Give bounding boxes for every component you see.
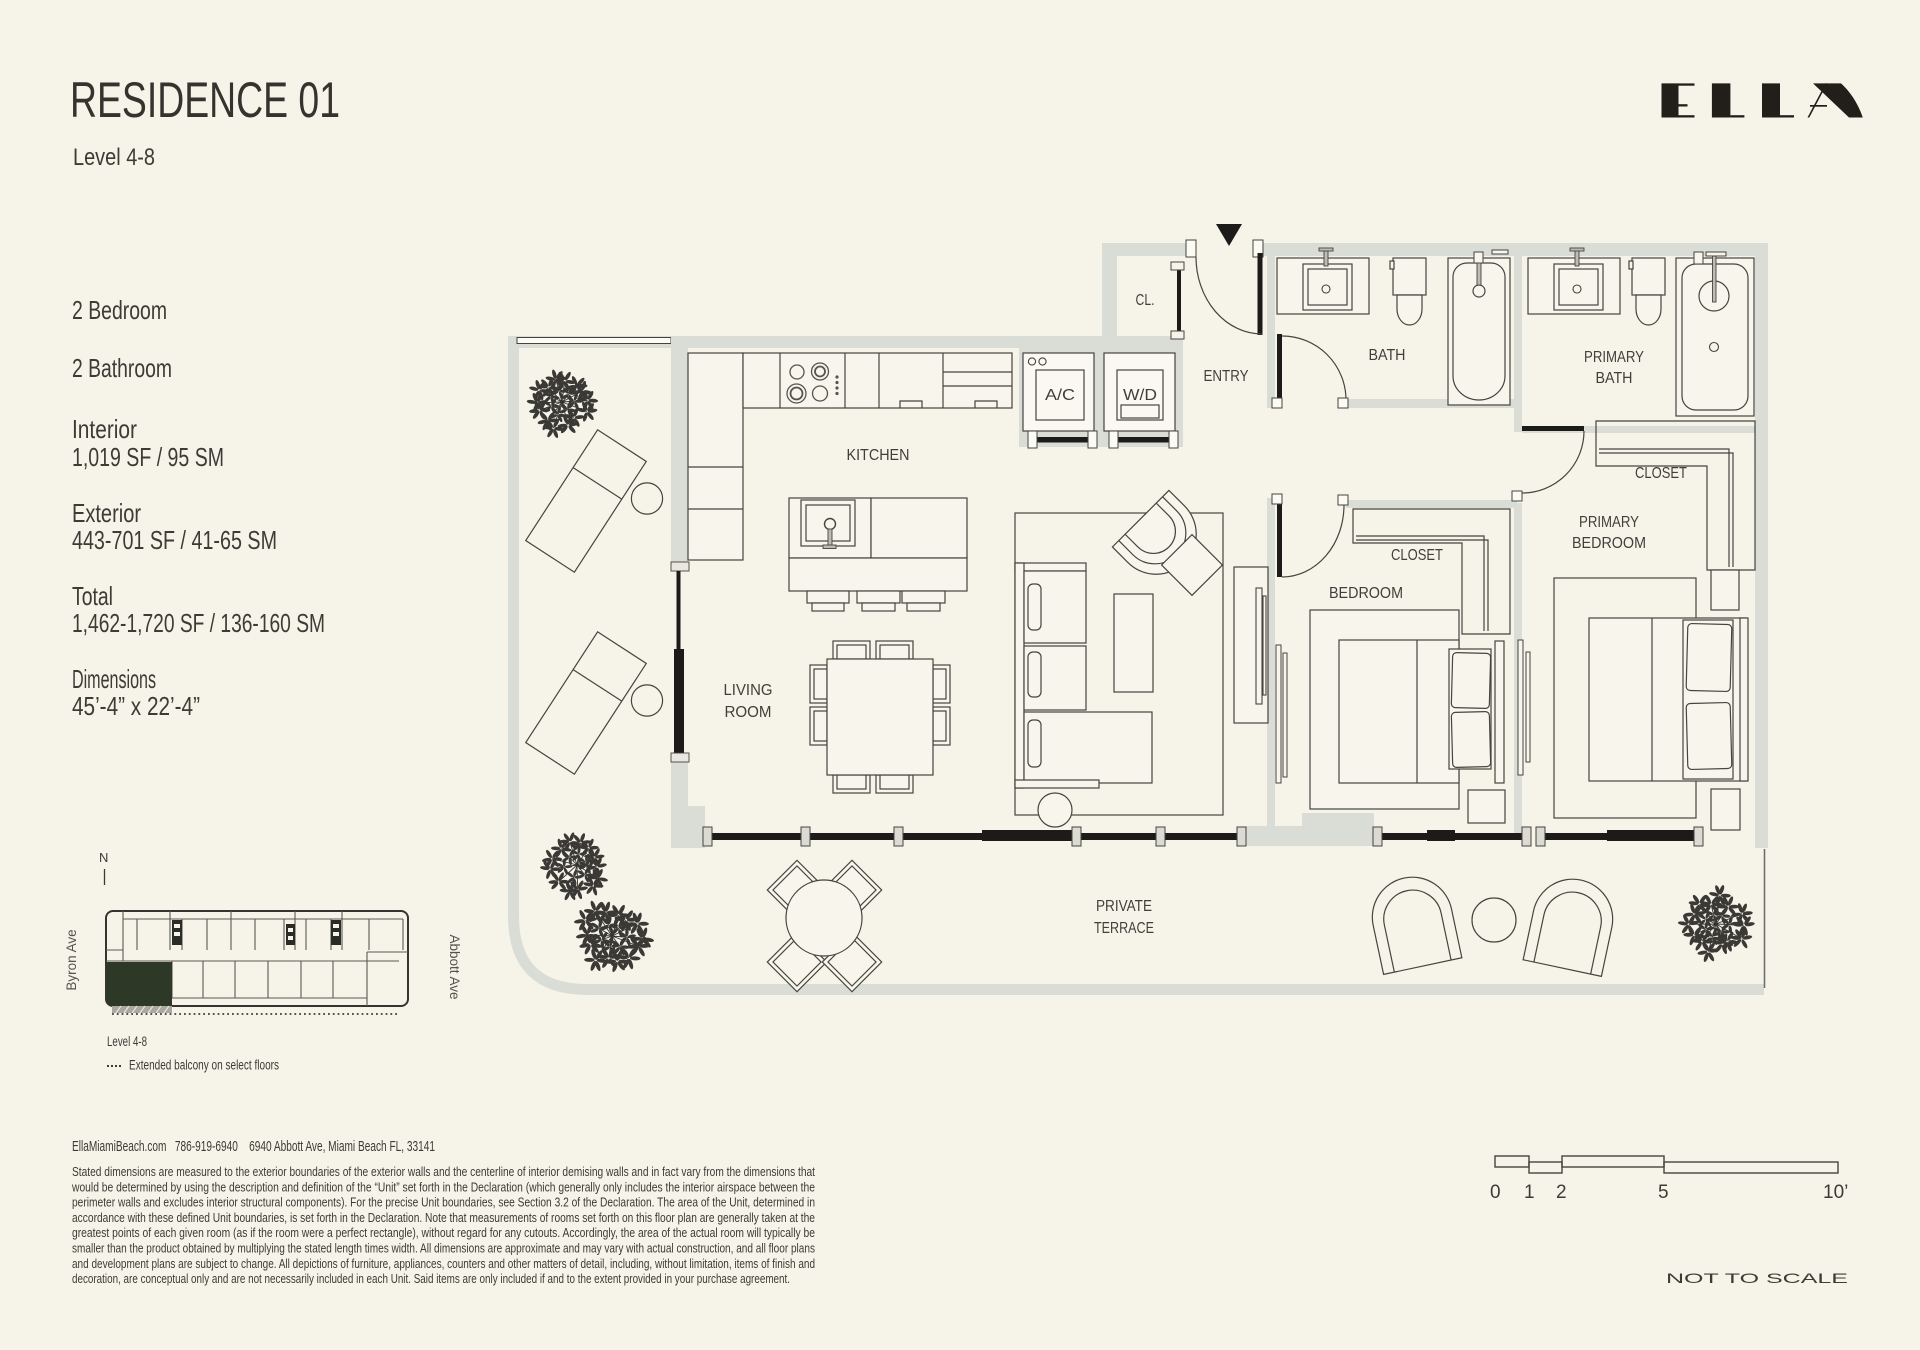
svg-text:Extended balcony on select flo: Extended balcony on select floors	[129, 1058, 279, 1073]
svg-text:BEDROOM: BEDROOM	[1572, 535, 1646, 552]
svg-text:LIVING: LIVING	[724, 682, 773, 699]
svg-text:45’-4” x 22’-4”: 45’-4” x 22’-4”	[72, 691, 200, 721]
svg-text:NOT TO SCALE: NOT TO SCALE	[1666, 1270, 1848, 1286]
svg-text:Stated dimensions are measured: Stated dimensions are measured to the ex…	[72, 1164, 815, 1179]
svg-text:RESIDENCE 01: RESIDENCE 01	[70, 72, 340, 128]
svg-text:EllaMiamiBeach.com 786-919-6: EllaMiamiBeach.com 786-919-6940 6940 Abb…	[72, 1138, 435, 1155]
svg-text:2 Bathroom: 2 Bathroom	[72, 353, 172, 383]
svg-text:greatest points of each given: greatest points of each given room (as i…	[72, 1225, 815, 1240]
svg-text:Interior: Interior	[72, 414, 137, 444]
svg-text:Level 4-8: Level 4-8	[107, 1033, 147, 1049]
svg-text:CL.: CL.	[1136, 292, 1155, 309]
svg-text:0: 0	[1490, 1182, 1501, 1203]
svg-text:Level 4-8: Level 4-8	[73, 144, 155, 171]
svg-text:N: N	[99, 850, 108, 865]
svg-text:CLOSET: CLOSET	[1391, 547, 1443, 564]
svg-text:1,462-1,720 SF / 136-160 SM: 1,462-1,720 SF / 136-160 SM	[72, 608, 325, 638]
svg-text:perimeter walls and excludes i: perimeter walls and excludes interior st…	[72, 1195, 815, 1210]
svg-text:A/C: A/C	[1045, 387, 1075, 404]
svg-text:2: 2	[1556, 1182, 1567, 1203]
svg-text:Byron Ave: Byron Ave	[64, 929, 79, 990]
svg-text:BATH: BATH	[1369, 347, 1406, 364]
svg-text:smaller than the product obtai: smaller than the product obtained by mul…	[72, 1241, 815, 1256]
svg-text:10’: 10’	[1823, 1182, 1848, 1203]
svg-text:KITCHEN: KITCHEN	[847, 447, 910, 464]
svg-text:Exterior: Exterior	[72, 498, 141, 528]
svg-text:would be determined by using t: would be determined by using the descrip…	[71, 1179, 815, 1194]
svg-text:Dimensions: Dimensions	[72, 664, 156, 694]
svg-text:BATH: BATH	[1596, 370, 1633, 387]
svg-text:Total: Total	[72, 581, 113, 611]
svg-text:443-701 SF / 41-65 SM: 443-701 SF / 41-65 SM	[72, 525, 277, 555]
svg-text:accordance with these defined: accordance with these defined Unit bound…	[72, 1210, 815, 1225]
svg-text:decoration, are conceptual onl: decoration, are conceptual only and are …	[72, 1271, 790, 1286]
svg-text:PRIVATE: PRIVATE	[1096, 898, 1152, 915]
svg-text:ROOM: ROOM	[725, 704, 772, 721]
svg-text:CLOSET: CLOSET	[1635, 465, 1687, 482]
svg-text:and development plans are subj: and development plans are subject to cha…	[72, 1256, 815, 1271]
svg-text:W/D: W/D	[1123, 387, 1157, 404]
svg-text:1: 1	[1524, 1182, 1535, 1203]
svg-text:ENTRY: ENTRY	[1204, 368, 1249, 385]
svg-text:PRIMARY: PRIMARY	[1584, 349, 1644, 366]
svg-text:PRIMARY: PRIMARY	[1579, 514, 1639, 531]
svg-text:Abbott Ave: Abbott Ave	[447, 934, 462, 999]
svg-text:TERRACE: TERRACE	[1094, 920, 1154, 937]
svg-text:1,019 SF / 95 SM: 1,019 SF / 95 SM	[72, 442, 224, 472]
svg-text:2 Bedroom: 2 Bedroom	[72, 295, 167, 325]
svg-text:BEDROOM: BEDROOM	[1329, 585, 1403, 602]
svg-text:5: 5	[1658, 1182, 1669, 1203]
